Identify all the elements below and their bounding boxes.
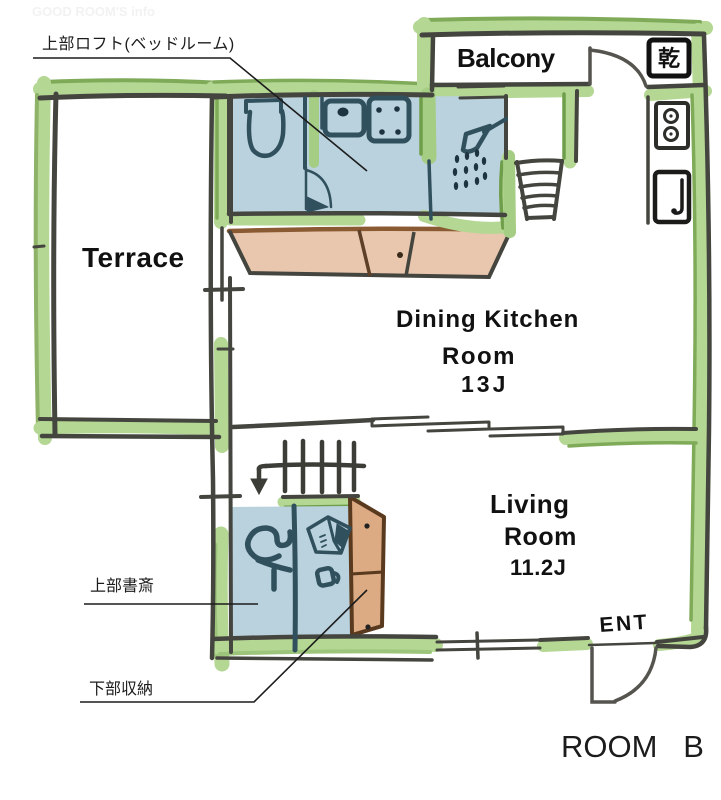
svg-text:Terrace: Terrace [82,242,185,273]
svg-text:13J: 13J [461,371,508,397]
svg-text:Dining Kitchen: Dining Kitchen [396,306,579,333]
svg-text:ENT: ENT [599,611,650,637]
svg-text:Living: Living [490,489,570,519]
svg-text:下部収納: 下部収納 [89,680,153,698]
svg-text:上部ロフト(ベッドルーム): 上部ロフト(ベッドルーム) [42,35,235,53]
svg-text:Room: Room [504,523,577,551]
svg-text:GOOD ROOM'S info: GOOD ROOM'S info [32,4,155,19]
svg-text:ROOM B: ROOM B [561,729,704,764]
svg-text:上部書斎: 上部書斎 [90,577,154,595]
svg-text:Balcony: Balcony [457,43,556,73]
svg-text:Room: Room [442,343,516,370]
svg-text:11.2J: 11.2J [510,555,566,580]
svg-text:乾: 乾 [658,46,680,71]
